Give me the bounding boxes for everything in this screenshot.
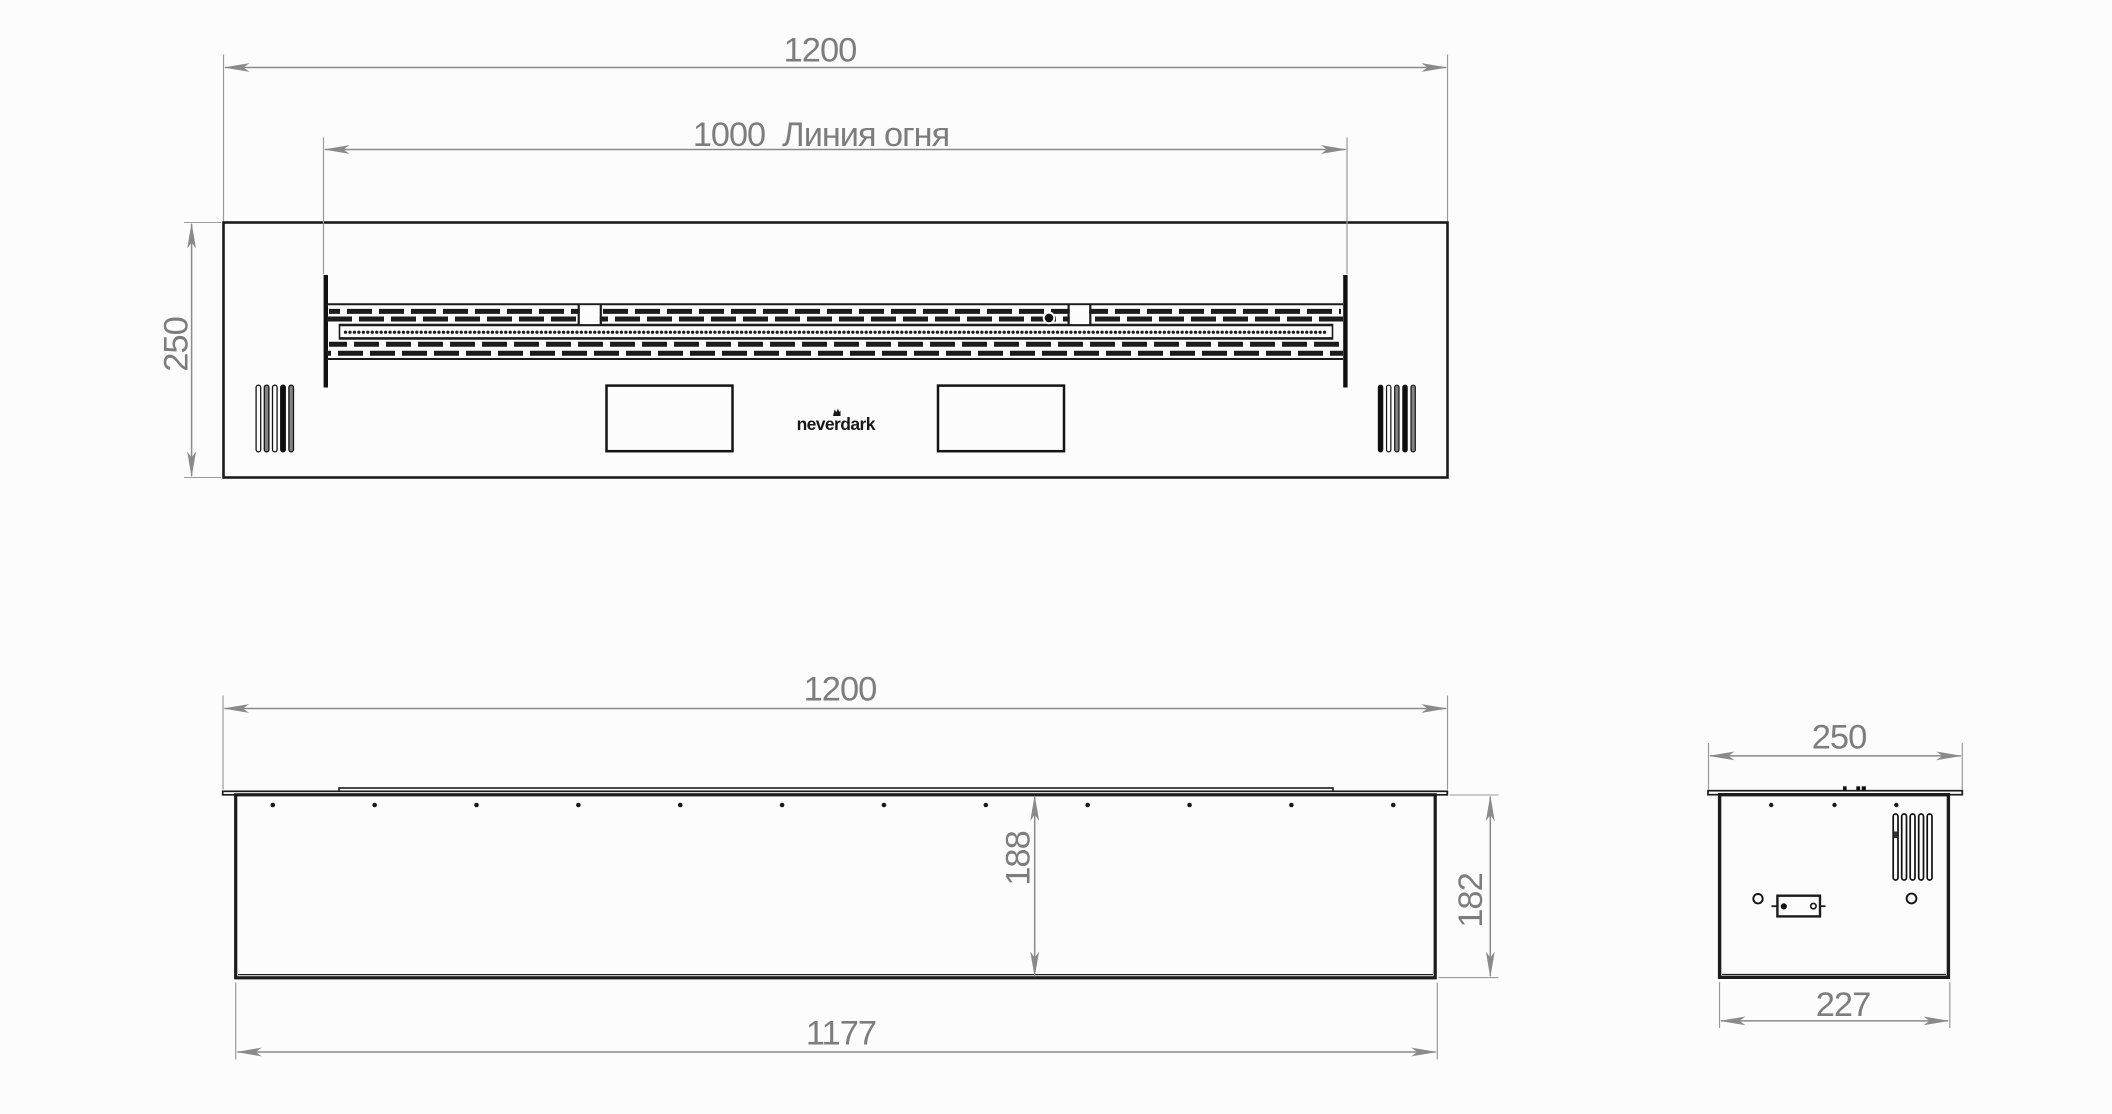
svg-text:1177: 1177 [806, 1015, 876, 1053]
svg-text:1200: 1200 [804, 671, 877, 709]
svg-text:1200: 1200 [784, 32, 857, 70]
svg-text:227: 227 [1816, 986, 1871, 1024]
svg-text:1000 Линия огня: 1000 Линия огня [693, 116, 949, 154]
svg-text:neverdark: neverdark [797, 414, 876, 434]
svg-text:250: 250 [1812, 718, 1867, 756]
svg-text:182: 182 [1452, 873, 1490, 928]
svg-text:250: 250 [158, 317, 196, 372]
svg-text:188: 188 [1000, 831, 1038, 886]
